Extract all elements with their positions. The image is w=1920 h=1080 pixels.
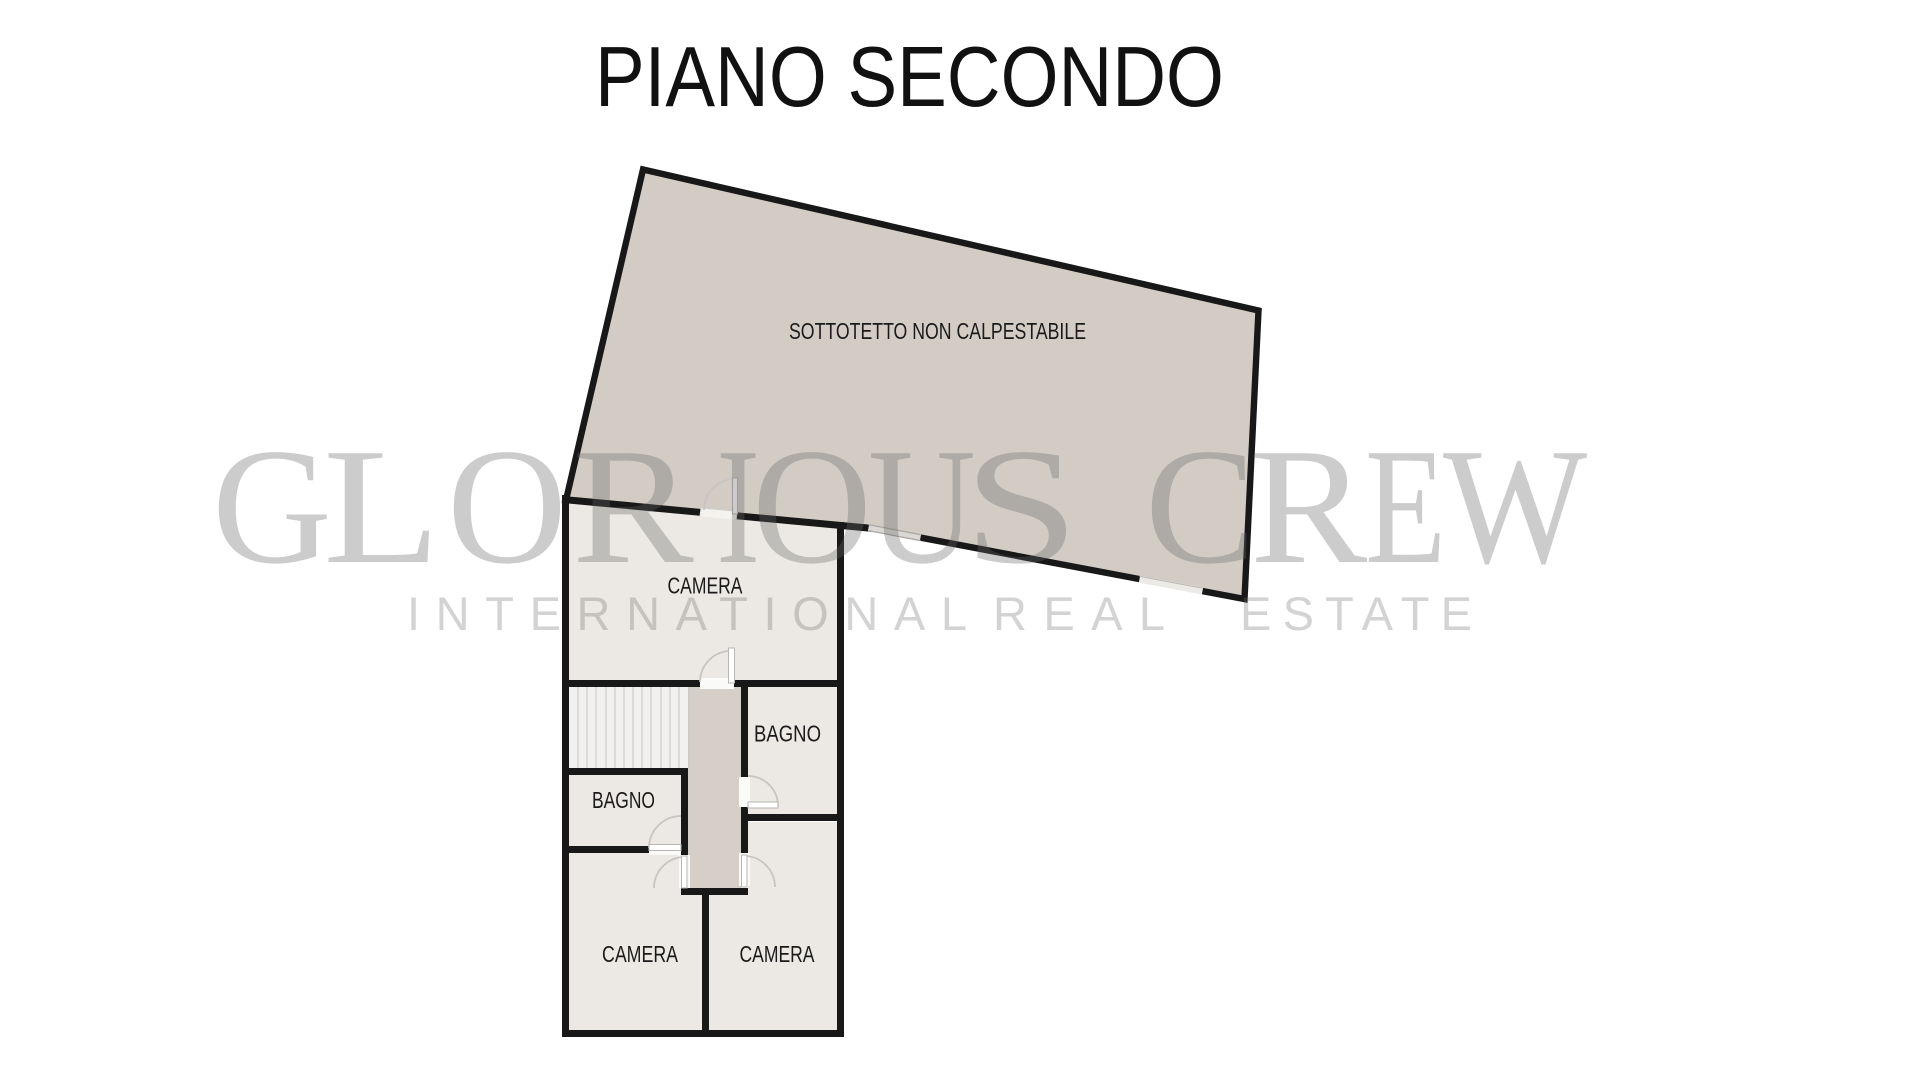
svg-text:PIANO SECONDO: PIANO SECONDO	[595, 30, 1224, 125]
svg-text:C: C	[1145, 414, 1256, 598]
svg-text:W: W	[1443, 415, 1588, 598]
svg-text:R: R	[572, 415, 694, 599]
svg-text:G: G	[212, 414, 332, 598]
svg-text:CAMERA: CAMERA	[602, 941, 678, 967]
svg-text:O: O	[752, 414, 872, 598]
svg-text:CAMERA: CAMERA	[740, 941, 815, 967]
svg-text:O: O	[447, 414, 567, 598]
svg-text:R: R	[1250, 414, 1367, 597]
svg-text:BAGNO: BAGNO	[754, 721, 821, 747]
svg-text:L: L	[323, 414, 441, 598]
svg-text:SOTTOTETTO NON CALPESTABILE: SOTTOTETTO NON CALPESTABILE	[789, 318, 1086, 344]
svg-text:E: E	[1365, 414, 1446, 598]
svg-text:U: U	[868, 415, 976, 599]
svg-text:REAL: REAL	[993, 587, 1165, 640]
svg-text:BAGNO: BAGNO	[592, 787, 655, 813]
svg-text:S: S	[964, 414, 1079, 598]
